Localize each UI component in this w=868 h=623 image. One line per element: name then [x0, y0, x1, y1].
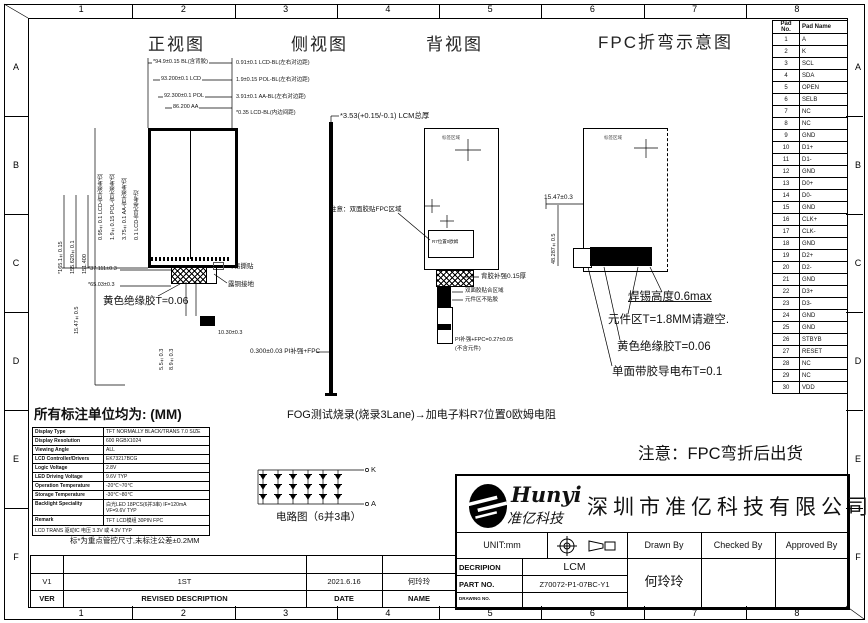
pin-table-cell: 21: [773, 274, 800, 286]
led-symbol: [305, 475, 311, 480]
front-view-center-line: [190, 131, 191, 259]
pin-table-cell: SDA: [800, 70, 848, 82]
front-view-title: 正视图: [148, 30, 205, 55]
callout-component-zone: 元件区T=1.8MM请避空.: [608, 314, 729, 328]
spec-table-row: Operation Temperature-20℃~70℃: [33, 482, 209, 491]
dim-back-note: (不含元件): [455, 346, 481, 352]
dim-aa-bl-gap: 3.91±0.1 AA-BL(左右对边距): [236, 94, 306, 100]
pin-table-row: 17CLK-: [773, 226, 848, 238]
dim-rot-aa-edge: 3.75±0.1 AA-背光参考边: [122, 140, 128, 240]
shipping-note: 注意：FPC弯折后出货: [638, 440, 803, 464]
pin-table-cell: NC: [800, 370, 848, 382]
dim-tail-width: 10.30±0.3: [218, 330, 242, 336]
callout-yellow-tape-fpc: 黄色绝缘胶T=0.06: [617, 341, 711, 355]
pin-table-cell: 18: [773, 238, 800, 250]
back-view-note: 注意：双面胶贴FPC区域: [330, 206, 402, 213]
led-symbol: [320, 485, 326, 490]
pin-table-cell: 20: [773, 262, 800, 274]
pin-table-row: 9GND: [773, 130, 848, 142]
back-view-r7-label: R7位置0欧姆: [432, 240, 458, 245]
pin-table-cell: 4: [773, 70, 800, 82]
drawn-by-name: 何玲玲: [627, 571, 701, 590]
pin-table-row: 24GND: [773, 310, 848, 322]
spec-row-value: 白光LED 18PCS(6并3串) IF=120mA VF=9.6V TYP: [104, 500, 209, 515]
pin-table-cell: 16: [773, 214, 800, 226]
pin-table-cell: D0-: [800, 190, 848, 202]
pin-table-cell: STBYB: [800, 334, 848, 346]
fpc-view-title: FPC折弯示意图: [598, 28, 733, 53]
unit-label: UNIT:mm: [457, 540, 547, 551]
back-view-hatch-strip: [436, 270, 474, 287]
spec-row-label: Operation Temperature: [33, 482, 104, 490]
brand-name-cn: 准亿科技: [507, 508, 563, 528]
hunyi-logo-icon: [467, 482, 509, 530]
pin-table-cell: D3-: [800, 298, 848, 310]
spec-table-row: Backlight Speciality白光LED 18PCS(6并3串) IF…: [33, 500, 209, 516]
pin-table-row: 10D1+: [773, 142, 848, 154]
led-symbol: [275, 485, 281, 490]
pin-table-cell: A: [800, 34, 848, 46]
drawing-no-label: DRAWING NO.: [459, 597, 521, 602]
dim-pol-bl-gap: 1.9±0.15 POL-BL(左右对边距): [236, 77, 310, 83]
pin-table-cell: 14: [773, 190, 800, 202]
spec-row-value: ALL: [104, 446, 209, 454]
dim-bl-width: *94.9±0.15 BL(含背胶): [152, 59, 209, 65]
pin-table-cell: 6: [773, 94, 800, 106]
pin-table-row: 8NC: [773, 118, 848, 130]
spec-row-label: LED Driving Voltage: [33, 473, 104, 481]
spec-row-value: EK73217BCG: [104, 455, 209, 463]
pin-table-cell: K: [800, 46, 848, 58]
approved-by-label: Approved By: [775, 540, 848, 551]
pin-table-cell: D2+: [800, 250, 848, 262]
pin-table-cell: 7: [773, 106, 800, 118]
pin-table-cell: NC: [800, 118, 848, 130]
pin-table-cell: GND: [800, 202, 848, 214]
brand-name: Hunyi: [511, 482, 582, 507]
led-symbol: [320, 495, 326, 500]
revision-desc: 1ST: [63, 577, 306, 586]
circuit-caption: 电路图（6并3串）: [276, 511, 361, 524]
dim-fpc-37: *37.111±0.3: [88, 266, 117, 272]
pin-table-cell: 11: [773, 154, 800, 166]
pin-table-cell: SCL: [800, 58, 848, 70]
pin-table-row: 23D3-: [773, 298, 848, 310]
checked-by-label: Checked By: [701, 540, 775, 551]
spec-row-label: LCD Controller/Drivers: [33, 455, 104, 463]
tolerance-note: 标*为重点管控尺寸,未标注公差±0.2MM: [70, 536, 200, 545]
back-view-title: 背视图: [426, 30, 483, 55]
led-symbol: [320, 475, 326, 480]
revision-header-date: DATE: [306, 594, 382, 603]
circuit-terminal-top: K: [371, 465, 376, 474]
pin-table-cell: D0+: [800, 178, 848, 190]
revision-table: V1 1ST 2021.6.16 何玲玲 VER REVISED DESCRIP…: [30, 555, 457, 608]
spec-table: Display TypeTFT NORMALLY BLACK/TRANS 7.0…: [32, 427, 210, 536]
dim-rot-lcd-edge: 0.95±0.1 LCD-背光参考边: [98, 140, 104, 240]
company-name: 深圳市准亿科技有限公司: [587, 491, 868, 521]
callout-tear-sticker: 易撕贴: [234, 263, 254, 270]
spec-table-row: LED Driving Voltage9.6V TYP: [33, 473, 209, 482]
pin-table-cell: 8: [773, 118, 800, 130]
spec-table-row: RemarkTFT LCD模组 30PIN FPC: [33, 516, 209, 525]
description-value: LCM: [522, 561, 627, 574]
drawing-sheet: 1122334455667788AABBCCDDEEFF: [0, 0, 868, 623]
dim-pol-width: 92.300±0.1 POL: [163, 93, 205, 99]
callout-conductive-cloth: 单面带胶导电布T=0.1: [612, 366, 722, 380]
pin-table-cell: 27: [773, 346, 800, 358]
pin-table-cell: CLK+: [800, 214, 848, 226]
back-view-label-area: 标签区域: [442, 136, 460, 141]
pin-table-cell: VDD: [800, 382, 848, 394]
pin-table-cell: GND: [800, 130, 848, 142]
dim-rot-lcd-height: 155.620±0.1: [70, 196, 76, 274]
led-symbol: [335, 475, 341, 480]
dim-fpc-65: *65.03±0.3: [88, 282, 115, 288]
pin-table-cell: 10: [773, 142, 800, 154]
front-view-fpc-hatch: [171, 266, 207, 284]
pin-table-cell: 23: [773, 298, 800, 310]
pin-table-cell: 24: [773, 310, 800, 322]
spec-table-row: Viewing AngleALL: [33, 446, 209, 455]
pin-table-header: Pad No.Pad Name: [773, 21, 848, 34]
pin-table-cell: RESET: [800, 346, 848, 358]
pin-table-row: 22D3+: [773, 286, 848, 298]
spec-row-value: -30℃~80℃: [104, 491, 209, 499]
pin-table-cell: GND: [800, 238, 848, 250]
pin-table-cell: 3: [773, 58, 800, 70]
led-symbol: [290, 485, 296, 490]
pin-table-row: 1A: [773, 34, 848, 46]
front-view-module-outline: [148, 128, 238, 268]
pin-table-cell: NC: [800, 358, 848, 370]
pin-table-row: 18GND: [773, 238, 848, 250]
pin-table-row: 27RESET: [773, 346, 848, 358]
pin-table-row: 14D0-: [773, 190, 848, 202]
pin-table-row: 16CLK+: [773, 214, 848, 226]
revision-header-desc: REVISED DESCRIPTION: [63, 594, 306, 603]
dim-lcd-bl-gap: 0.91±0.1 LCD-BL(左右对边距): [236, 60, 310, 66]
pin-table-row: 6SELB: [773, 94, 848, 106]
pin-table-row: 26STBYB: [773, 334, 848, 346]
spec-row-label: Display Type: [33, 428, 104, 436]
spec-row-value: 9.6V TYP: [104, 473, 209, 481]
spec-row-label: Logic Voltage: [33, 464, 104, 472]
pin-table-cell: CLK-: [800, 226, 848, 238]
led-symbol: [290, 495, 296, 500]
dim-aa-width: 86.200 AA: [172, 104, 199, 110]
part-no-value: Z70072-P1-07BC-Y1: [522, 580, 627, 589]
dim-rot-pol-edge: 1.9±0.15 POL-背光参考边: [110, 140, 116, 240]
revision-name: 何玲玲: [382, 577, 456, 586]
front-view-adhesive-strip: [151, 257, 229, 261]
dim-rot-pol-height: 151.400: [82, 196, 88, 274]
circuit-terminal-bottom: A: [371, 499, 376, 508]
spec-table-row: Display TypeTFT NORMALLY BLACK/TRANS 7.0…: [33, 428, 209, 437]
revision-ver: V1: [31, 577, 63, 586]
led-symbol: [275, 495, 281, 500]
led-symbol: [305, 485, 311, 490]
pin-table-cell: D3+: [800, 286, 848, 298]
side-view-title: 侧视图: [291, 30, 348, 55]
front-view-fpc-stiffener: [206, 266, 217, 284]
callout-back-stiffener: 背胶补强0.15厚: [481, 273, 526, 280]
callout-pi-stiffener: 0.300±0.03 PI补强+FPC: [250, 348, 320, 355]
dim-fpc-left: 48.287±0.5: [551, 208, 557, 264]
dim-lcd-bl-inner: *0.35 LCD-BL(内边间距): [236, 110, 296, 116]
spec-row-value: TFT NORMALLY BLACK/TRANS 7.0 SIZE: [104, 428, 209, 436]
pin-table-row: 11D1-: [773, 154, 848, 166]
pin-table-cell: 28: [773, 358, 800, 370]
led-symbol: [260, 495, 266, 500]
back-view-tail-block: [437, 324, 451, 330]
dim-rot-fpc: 15.47±0.5: [74, 288, 80, 334]
dim-rot-bl-height: *165.1±0.15: [58, 196, 64, 274]
dim-lcd-width: 93.200±0.1 LCD: [160, 76, 202, 82]
pin-table-cell: GND: [800, 310, 848, 322]
revision-header-name: NAME: [382, 594, 456, 603]
spec-table-row: LCD Controller/DriversEK73217BCG: [33, 455, 209, 464]
spec-row-value: 2.8V: [104, 464, 209, 472]
pin-table-cell: 12: [773, 166, 800, 178]
title-block: Hunyi 准亿科技 深圳市准亿科技有限公司 UNIT:mm Drawn By …: [455, 474, 850, 610]
side-view-foot: [325, 393, 337, 396]
revision-date: 2021.6.16: [306, 577, 382, 586]
spec-row-value: 600 RGBX1024: [104, 437, 209, 445]
description-label: DECRIPION: [459, 563, 521, 572]
units-note: 所有标注单位均为: (MM): [34, 403, 182, 423]
pin-table-cell: 5: [773, 82, 800, 94]
pin-table-cell: OPEN: [800, 82, 848, 94]
dim-tail-1: 5.5±0.3: [159, 330, 165, 370]
spec-table-row: Storage Temperature-30℃~80℃: [33, 491, 209, 500]
led-symbol: [305, 495, 311, 500]
led-symbol: [260, 485, 266, 490]
spec-row-label: Backlight Speciality: [33, 500, 104, 515]
fog-note: FOG测试烧录(烧录3Lane)→加电子料R7位置0欧姆电阻: [287, 406, 556, 422]
pin-table-row: 15GND: [773, 202, 848, 214]
pin-table-row: 25GND: [773, 322, 848, 334]
pin-table-cell: 22: [773, 286, 800, 298]
fpc-view-label-area: 标签区域: [604, 136, 622, 141]
pin-table-row: 12GND: [773, 166, 848, 178]
pin-table-cell: GND: [800, 274, 848, 286]
pin-table-cell: 9: [773, 130, 800, 142]
dim-tail-2: 8.9±0.3: [169, 330, 175, 370]
pin-table-row: 21GND: [773, 274, 848, 286]
spec-row-value: -20℃~70℃: [104, 482, 209, 490]
pin-table-cell: 2: [773, 46, 800, 58]
pin-table-row: 19D2+: [773, 250, 848, 262]
pin-table-cell: 30: [773, 382, 800, 394]
pin-table-cell: NC: [800, 106, 848, 118]
callout-copper-ground: 露铜接地: [228, 281, 254, 288]
projection-symbol-icon: [555, 536, 621, 556]
pin-table-cell: 15: [773, 202, 800, 214]
spec-row-label: Storage Temperature: [33, 491, 104, 499]
pin-table-row: 5OPEN: [773, 82, 848, 94]
dim-fpc-top: 15.47±0.3: [544, 194, 573, 201]
pin-table-row: 3SCL: [773, 58, 848, 70]
pin-table-cell: 25: [773, 322, 800, 334]
spec-row-label: Remark: [33, 516, 104, 525]
pin-table-cell: GND: [800, 322, 848, 334]
pin-table: Pad No.Pad Name1A2K3SCL4SDA5OPEN6SELB7NC…: [772, 20, 848, 394]
callout-solder-height: 焊锡高度0.6max: [628, 291, 712, 305]
callout-back-component: 元件区不贴胶: [465, 297, 498, 303]
front-view-connector-block: [200, 316, 215, 326]
pin-table-cell: GND: [800, 166, 848, 178]
pin-table-row: 28NC: [773, 358, 848, 370]
revision-header-ver: VER: [31, 594, 63, 603]
pin-table-header-cell: Pad Name: [800, 21, 848, 34]
pin-table-row: 4SDA: [773, 70, 848, 82]
dim-lcm-thickness: *3.53(+0.15/-0.1) LCM总厚: [340, 111, 429, 120]
side-view-bar: [329, 122, 333, 394]
pin-table-row: 30VDD: [773, 382, 848, 394]
pin-table-cell: SELB: [800, 94, 848, 106]
fpc-view-fold-stack: [590, 247, 652, 266]
pin-table-cell: D1+: [800, 142, 848, 154]
led-symbol: [335, 495, 341, 500]
back-view-black-block: [437, 287, 451, 307]
dim-back-pi: PI补强+FPC=0.27±0.05: [455, 337, 513, 343]
spec-span-row: LCD TRANS 驱动IC 电压 3.3V 或 4.3V TYP: [33, 526, 209, 535]
pin-table-row: 29NC: [773, 370, 848, 382]
led-symbol: [335, 485, 341, 490]
pin-table-row: 13D0+: [773, 178, 848, 190]
pin-table-cell: 1: [773, 34, 800, 46]
pin-table-row: 20D2-: [773, 262, 848, 274]
pin-table-cell: 29: [773, 370, 800, 382]
spec-table-row: Logic Voltage2.8V: [33, 464, 209, 473]
spec-table-row: Display Resolution600 RGBX1024: [33, 437, 209, 446]
spec-row-label: Display Resolution: [33, 437, 104, 445]
pin-table-row: 7NC: [773, 106, 848, 118]
spec-row-label: Viewing Angle: [33, 446, 104, 454]
part-no-label: PART NO.: [459, 580, 521, 589]
callout-back-tape: 双面胶贴合区域: [465, 288, 504, 294]
pin-table-cell: 26: [773, 334, 800, 346]
pin-table-cell: 13: [773, 178, 800, 190]
pin-table-header-cell: Pad No.: [773, 21, 800, 34]
spec-row-value: TFT LCD模组 30PIN FPC: [104, 516, 209, 525]
led-symbol: [290, 475, 296, 480]
led-symbol: [260, 475, 266, 480]
pin-table-cell: 17: [773, 226, 800, 238]
pin-table-cell: D1-: [800, 154, 848, 166]
pin-table-cell: 19: [773, 250, 800, 262]
drawn-by-label: Drawn By: [627, 540, 701, 551]
pin-table-row: 2K: [773, 46, 848, 58]
dim-rot-lcd-edge2: 0.1 LCD-背光参考边: [134, 140, 140, 240]
pin-table-cell: D2-: [800, 262, 848, 274]
led-symbol: [275, 475, 281, 480]
callout-yellow-tape: 黄色绝缘胶T=0.06: [103, 295, 188, 308]
